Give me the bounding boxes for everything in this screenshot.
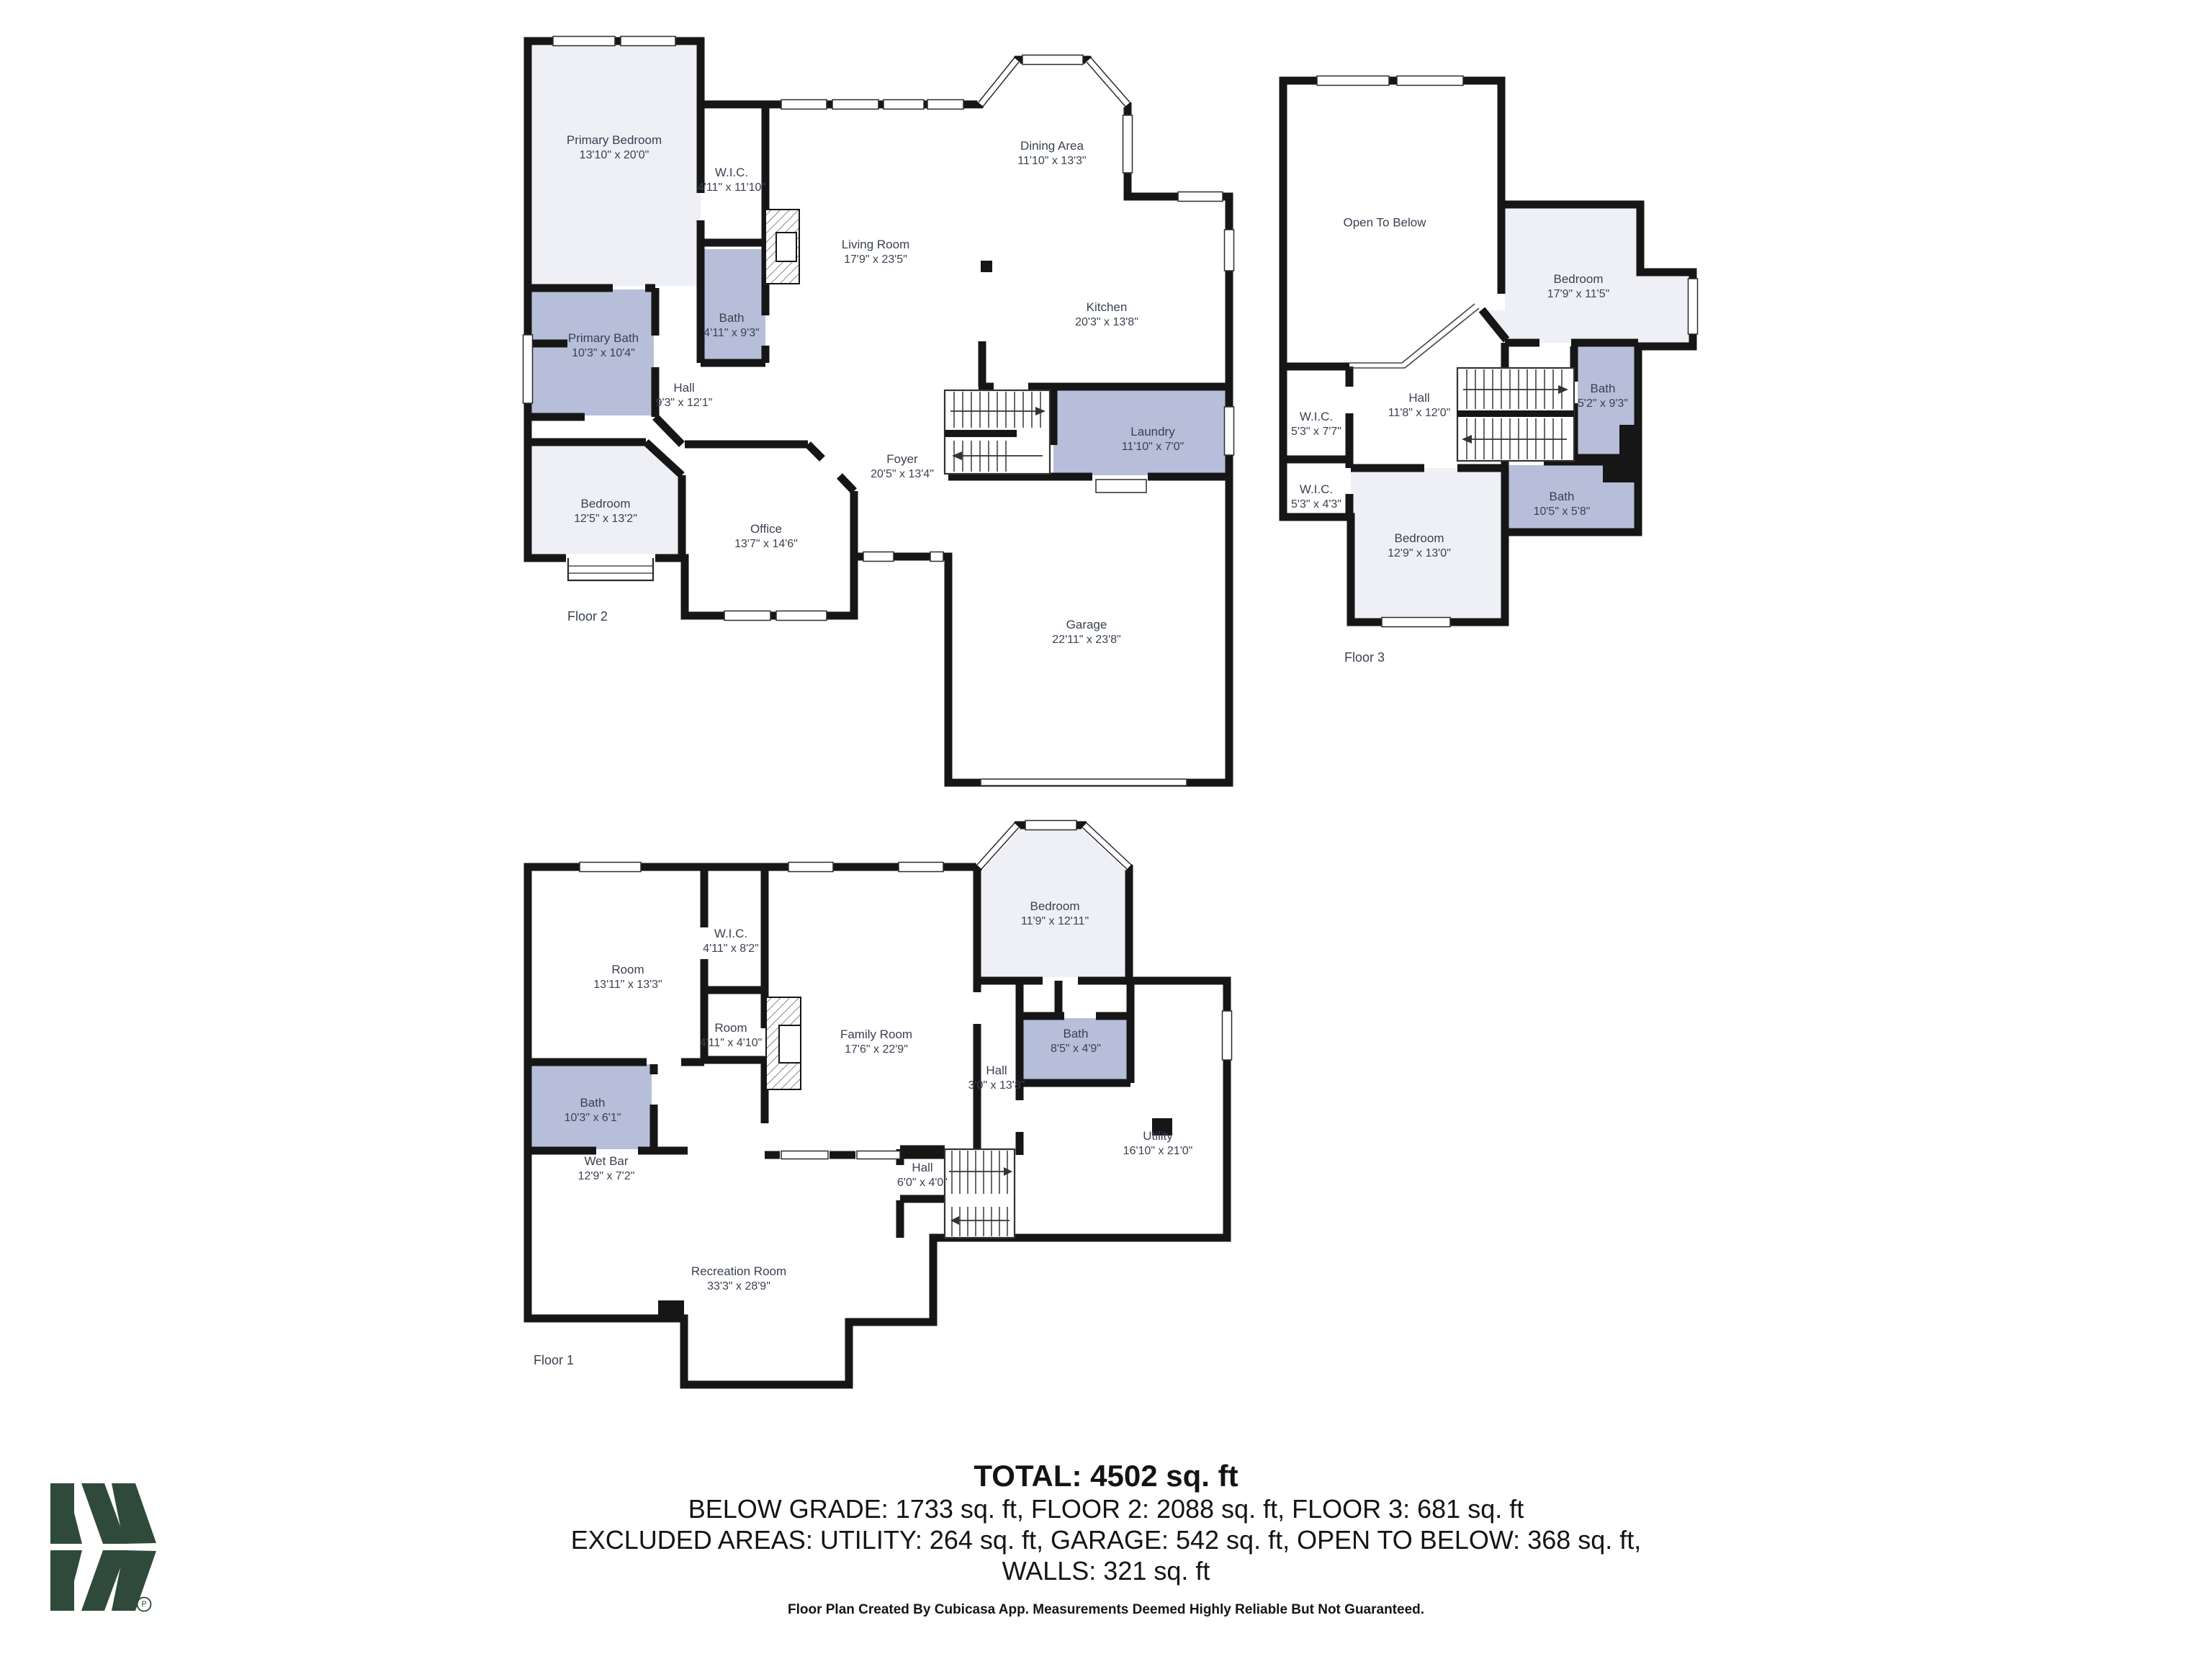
room-label-bath-f2: Bath 4'11" x 9'3" bbox=[703, 310, 760, 341]
room-label-wic-f2: W.I.C. 4'11" x 11'10" bbox=[698, 165, 765, 195]
room-label-hall-f3: Hall 11'8" x 12'0" bbox=[1388, 390, 1451, 421]
floor-breakdown-text: BELOW GRADE: 1733 sq. ft, FLOOR 2: 2088 … bbox=[0, 1493, 2212, 1524]
floor-3-caption: Floor 3 bbox=[1344, 650, 1385, 665]
room-label-wic2-f3: W.I.C. 5'3" x 4'3" bbox=[1291, 482, 1341, 512]
floor-2-caption: Floor 2 bbox=[567, 609, 608, 624]
disclaimer-text: Floor Plan Created By Cubicasa App. Meas… bbox=[0, 1602, 2212, 1618]
room-label-room1-f1: Room 13'11" x 13'3" bbox=[593, 962, 662, 992]
area-summary: TOTAL: 4502 sq. ft BELOW GRADE: 1733 sq.… bbox=[0, 1459, 2212, 1618]
room-label-kitchen: Kitchen 20'3" x 13'8" bbox=[1075, 300, 1138, 330]
room-label-living-room: Living Room 17'9" x 23'5" bbox=[842, 237, 910, 267]
room-label-wet-bar: Wet Bar 12'9" x 7'2" bbox=[578, 1154, 635, 1184]
room-label-stair-hall-f1: Hall 6'0" x 4'0" bbox=[897, 1160, 948, 1190]
room-label-garage: Garage 22'11" x 23'8" bbox=[1052, 617, 1120, 647]
floor-1-fireplace-icon bbox=[766, 997, 801, 1089]
room-label-dining-area: Dining Area 11'10" x 13'3" bbox=[1017, 138, 1086, 168]
room-label-primary-bath: Primary Bath 10'3" x 10'4" bbox=[568, 331, 639, 361]
room-label-recreation-room: Recreation Room 33'3" x 28'9" bbox=[691, 1264, 786, 1294]
room-label-office: Office 13'7" x 14'6" bbox=[734, 521, 798, 552]
room-label-room2-f1: Room 4'11" x 4'10" bbox=[700, 1020, 763, 1051]
room-label-bath2-f3: Bath 10'5" x 5'8" bbox=[1534, 489, 1591, 519]
room-label-open-to-below: Open To Below bbox=[1344, 215, 1426, 230]
floor-1-plan bbox=[528, 821, 1232, 1385]
room-label-wic1-f3: W.I.C. 5'3" x 7'7" bbox=[1291, 409, 1341, 439]
room-label-wic-f1: W.I.C. 4'11" x 8'2" bbox=[703, 926, 759, 956]
room-label-bath1-f1: Bath 10'3" x 6'1" bbox=[565, 1095, 621, 1125]
room-label-utility: Utility 16'10" x 21'0" bbox=[1123, 1128, 1193, 1159]
room-label-bedroom2-f3: Bedroom 12'9" x 13'0" bbox=[1388, 531, 1451, 561]
room-label-bedroom1-f3: Bedroom 17'9" x 11'5" bbox=[1547, 271, 1610, 302]
floor-2-fireplace-icon bbox=[765, 210, 799, 284]
floor-2-stairs-icon bbox=[945, 390, 1050, 474]
room-label-laundry: Laundry 11'10" x 7'0" bbox=[1122, 424, 1184, 454]
excluded-areas-text: EXCLUDED AREAS: UTILITY: 264 sq. ft, GAR… bbox=[0, 1524, 2212, 1555]
room-label-bath2-f1: Bath 8'5" x 4'9" bbox=[1051, 1026, 1101, 1056]
floor-1-stairs-icon bbox=[945, 1149, 1015, 1238]
support-post-icon bbox=[981, 261, 992, 272]
open-to-below-railing bbox=[1349, 304, 1479, 368]
room-label-bedroom-f1: Bedroom 11'9" x 12'11" bbox=[1021, 899, 1089, 929]
floor-3-stairs-icon bbox=[1457, 368, 1574, 461]
total-area-text: TOTAL: 4502 sq. ft bbox=[0, 1459, 2212, 1493]
room-label-bath1-f3: Bath 5'2" x 9'3" bbox=[1578, 381, 1628, 411]
floor-plan-page: { "summary": { "total": "TOTAL: 4502 sq.… bbox=[0, 0, 2212, 1659]
room-label-foyer: Foyer 20'5" x 13'4" bbox=[871, 451, 934, 482]
floor-plan-drawing bbox=[0, 0, 2212, 1659]
room-label-family-room: Family Room 17'6" x 22'9" bbox=[840, 1027, 912, 1057]
floor-1-caption: Floor 1 bbox=[534, 1353, 574, 1368]
room-label-hall-f2: Hall 9'3" x 12'1" bbox=[656, 380, 713, 410]
wall-step-block bbox=[658, 1300, 684, 1318]
room-label-bedroom-f2: Bedroom 12'5" x 13'2" bbox=[574, 496, 637, 526]
room-label-hall-corridor-f1: Hall 3'0" x 13'8" bbox=[968, 1063, 1025, 1093]
floor-3-plan bbox=[1283, 76, 1698, 627]
room-label-primary-bedroom: Primary Bedroom 13'10" x 20'0" bbox=[567, 132, 662, 163]
walls-area-text: WALLS: 321 sq. ft bbox=[0, 1555, 2212, 1586]
